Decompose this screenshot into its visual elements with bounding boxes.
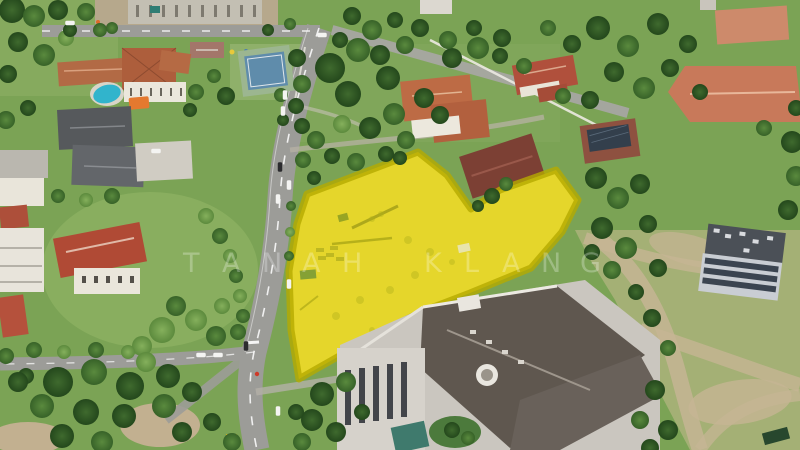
tree (77, 3, 95, 21)
tree (310, 382, 334, 406)
tree (499, 177, 513, 191)
tree (198, 208, 214, 224)
tree (484, 188, 500, 204)
tree (136, 352, 156, 372)
tree (152, 394, 176, 418)
park-pavilion (190, 42, 224, 58)
tree (336, 372, 356, 392)
car (244, 341, 249, 351)
tree (692, 84, 708, 100)
tree (397, 131, 415, 149)
car (196, 353, 206, 358)
aerial-photo-canvas: TANAHKLANG (0, 0, 800, 450)
building-white-blue-east (698, 223, 786, 300)
tree (236, 309, 250, 323)
tree (326, 422, 346, 442)
car (281, 106, 286, 116)
house-grey-top (700, 0, 716, 10)
tree (294, 118, 310, 134)
tree (444, 422, 460, 438)
tree (359, 117, 381, 139)
tree (516, 58, 532, 74)
tree (295, 152, 311, 168)
tree (262, 24, 274, 36)
tree (324, 148, 340, 164)
tree (778, 200, 798, 220)
tree (615, 237, 637, 259)
tree (203, 413, 221, 431)
watermark-letter: H (342, 248, 362, 279)
tree (383, 103, 405, 125)
tree (185, 309, 207, 331)
tree (214, 298, 230, 314)
tree (33, 44, 55, 66)
tree (472, 200, 484, 212)
tree (586, 16, 610, 40)
tree (284, 18, 296, 30)
tree (293, 75, 311, 93)
tree (396, 36, 414, 54)
tree (26, 342, 42, 358)
tree (346, 38, 370, 62)
tree (106, 22, 118, 34)
tree (354, 404, 370, 420)
tree (630, 174, 650, 194)
watermark-letter: L (464, 248, 479, 279)
watermark-letter: K (424, 248, 443, 279)
tree (370, 45, 390, 65)
tree (645, 380, 665, 400)
tree (347, 153, 365, 171)
tree (183, 103, 197, 117)
site-container (150, 6, 160, 13)
tree (414, 88, 434, 108)
tree (603, 261, 621, 279)
tree (104, 188, 120, 204)
tree (581, 91, 599, 109)
car (276, 194, 281, 204)
tree (73, 399, 99, 425)
tree (660, 340, 676, 356)
tree (493, 29, 511, 47)
tree (50, 424, 74, 448)
tree (88, 342, 104, 358)
tree (81, 359, 107, 385)
car (276, 406, 281, 416)
tree (563, 35, 581, 53)
watermark-letter: A (222, 248, 241, 279)
tree (431, 106, 449, 124)
tree (343, 7, 361, 25)
house-white-top (420, 0, 452, 14)
tree (288, 404, 304, 420)
car (213, 353, 223, 358)
tree (206, 326, 226, 346)
tree (633, 77, 655, 99)
tree (467, 37, 489, 59)
aerial-photo: TANAHKLANG (0, 0, 800, 450)
tree (639, 215, 657, 233)
tree (492, 48, 508, 64)
tree (286, 201, 296, 211)
tree (116, 372, 144, 400)
orange-awning (129, 96, 150, 110)
car (283, 90, 288, 100)
tree (20, 100, 36, 116)
tree (30, 394, 54, 418)
tree (233, 289, 247, 303)
tree (43, 367, 73, 397)
tree (411, 19, 429, 37)
tree (555, 88, 571, 104)
tree (585, 167, 607, 189)
tree (315, 53, 345, 83)
car (278, 162, 283, 172)
tree (647, 13, 669, 35)
tree (378, 146, 394, 162)
motorbike (255, 372, 259, 376)
tree (387, 12, 403, 28)
car (287, 279, 292, 289)
tree (307, 131, 325, 149)
tree (362, 20, 382, 40)
tree (393, 151, 407, 165)
tree (661, 59, 679, 77)
car (151, 149, 161, 154)
tree (112, 404, 136, 428)
car (65, 21, 75, 26)
tree (442, 48, 462, 68)
tree (591, 217, 613, 239)
watermark-letter: T (182, 248, 200, 279)
watermark-letter: N (541, 248, 561, 279)
tree (217, 87, 235, 105)
tree (604, 62, 624, 82)
tree (48, 0, 68, 20)
tree (207, 69, 221, 83)
car (287, 180, 292, 190)
tree (649, 259, 667, 277)
tree (679, 35, 697, 53)
tree (307, 171, 321, 185)
tree (631, 411, 649, 429)
tree (288, 49, 306, 67)
tree (461, 431, 475, 445)
tree (288, 98, 304, 114)
watermark-letter: A (502, 248, 521, 279)
watermark-letter: G (580, 248, 601, 279)
tree (79, 193, 93, 207)
tree (628, 284, 644, 300)
tree (466, 20, 482, 36)
tree (23, 5, 45, 27)
watermark-letter: N (262, 248, 282, 279)
tree (57, 345, 71, 359)
tree (149, 317, 175, 343)
tree (188, 84, 204, 100)
tree (182, 382, 202, 402)
tree (439, 31, 457, 49)
tree (756, 120, 772, 136)
spiral-tower-core (481, 369, 493, 381)
tree (335, 81, 361, 107)
tree (121, 345, 135, 359)
tree (376, 66, 400, 90)
tree (230, 324, 246, 340)
tree (8, 372, 28, 392)
tree (172, 422, 192, 442)
tree (212, 228, 228, 244)
house-solar-panels (580, 118, 641, 163)
tree (643, 309, 661, 327)
sports-court (238, 45, 295, 97)
watermark-letter: A (302, 248, 321, 279)
tree (333, 115, 351, 133)
tree (51, 189, 65, 203)
tree (607, 187, 629, 209)
tree (284, 251, 294, 261)
tree (93, 23, 107, 37)
tree (617, 35, 639, 57)
tree (301, 409, 323, 431)
tree (8, 32, 28, 52)
house-salmon-top (715, 6, 789, 45)
tree (332, 32, 348, 48)
car (317, 33, 327, 38)
tree (285, 227, 295, 237)
tree (277, 114, 289, 126)
mansion-driveway (135, 141, 193, 182)
tree (156, 364, 180, 388)
tree (540, 20, 556, 36)
tree (658, 420, 678, 440)
tree (166, 296, 186, 316)
